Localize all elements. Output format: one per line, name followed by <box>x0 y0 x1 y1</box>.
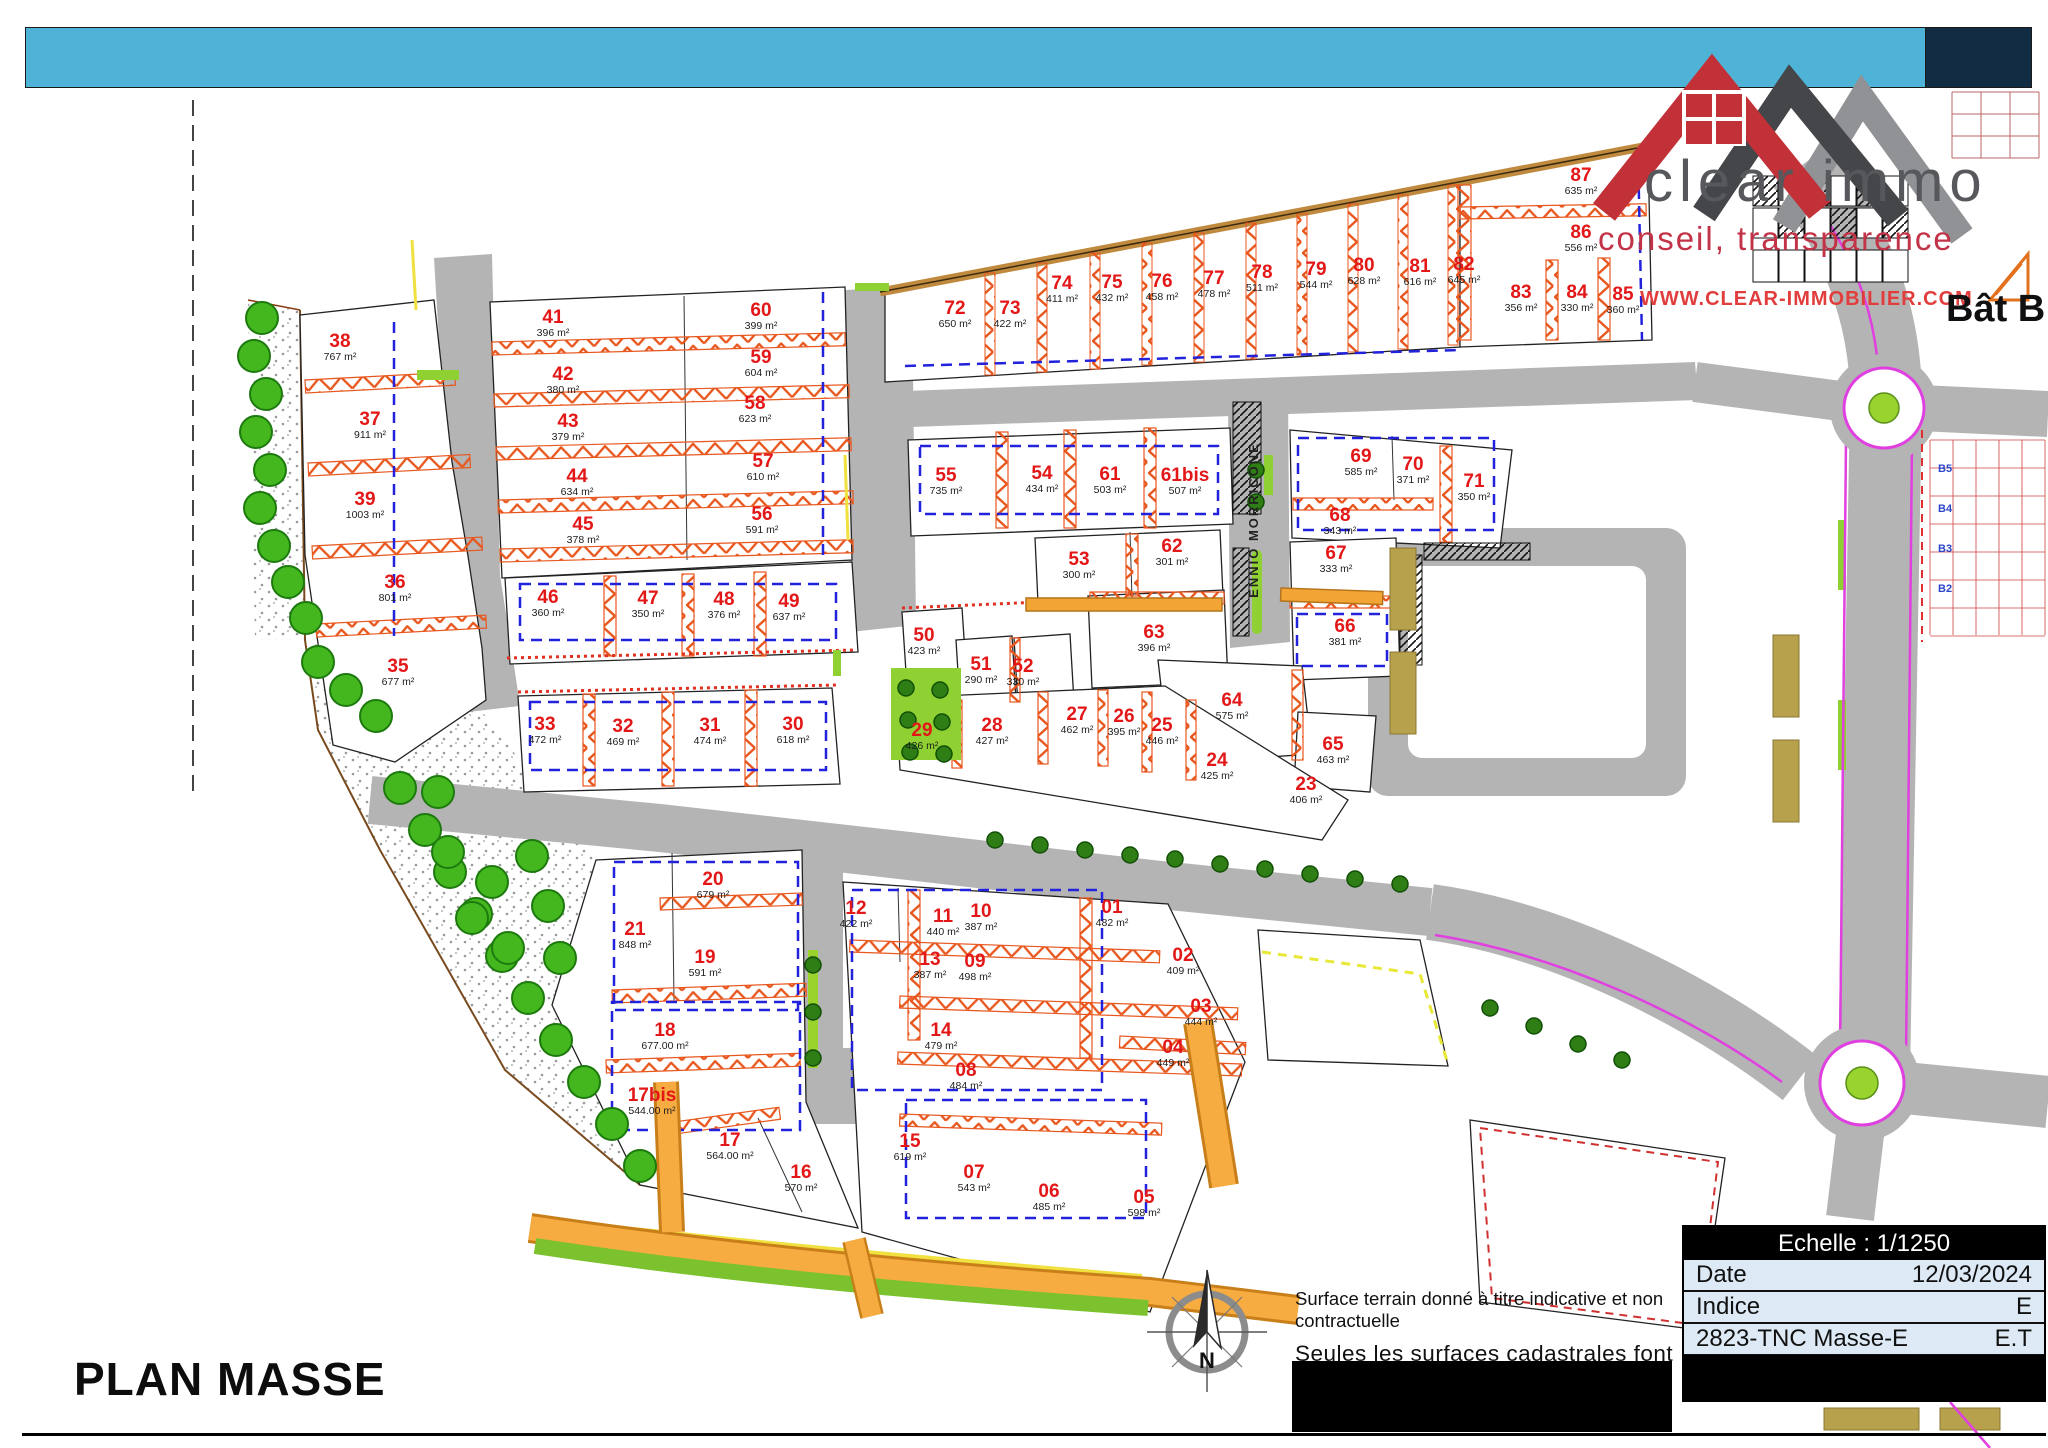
scale-label: Echelle : 1/1250 <box>1684 1227 2044 1260</box>
roundabout-south <box>1804 1025 1920 1141</box>
lot-area: 511 m² <box>1246 282 1278 294</box>
lot-number: 59 <box>750 347 771 368</box>
inner-parcel <box>1408 566 1646 758</box>
lot-area: 434 m² <box>1026 483 1059 495</box>
lot-number: 30 <box>782 714 803 735</box>
title-block-footer-band <box>1682 1355 2046 1402</box>
lot-area: 381 m² <box>1329 636 1362 648</box>
building-label: B3 <box>1938 543 1952 555</box>
title-block-row: Indice E <box>1684 1292 2044 1324</box>
lot-area: 848 m² <box>619 939 652 951</box>
lot-number: 11 <box>933 906 954 927</box>
lot-area: 333 m² <box>1320 563 1353 575</box>
lot-number: 18 <box>654 1020 675 1041</box>
lot-area: 479 m² <box>925 1040 958 1052</box>
lot-area: 446 m² <box>1146 735 1179 747</box>
lot-number: 47 <box>637 588 658 609</box>
lot-area: 463 m² <box>1317 754 1350 766</box>
lot-number: 71 <box>1463 471 1485 492</box>
lot-number: 67 <box>1325 543 1346 564</box>
lot-area: 485 m² <box>1033 1201 1066 1213</box>
lot-area: 604 m² <box>745 367 778 379</box>
page-title: PLAN MASSE <box>74 1352 386 1406</box>
lot-number: 75 <box>1101 272 1123 293</box>
lot-area: 300 m² <box>1063 569 1096 581</box>
logo-name: clear immo <box>1644 148 1988 215</box>
row-label: 2823-TNC Masse-E <box>1696 1325 1908 1353</box>
lot-number: 17bis <box>628 1085 677 1106</box>
lot-number: 09 <box>964 951 985 972</box>
lot-number: 46 <box>537 587 558 608</box>
lot-area: 350 m² <box>1458 491 1491 503</box>
lot-area: 484 m² <box>950 1080 983 1092</box>
lot-number: 81 <box>1409 256 1431 277</box>
lot-area: 378 m² <box>567 534 600 546</box>
lot-number: 19 <box>694 947 715 968</box>
lot-area: 426 m² <box>906 740 939 752</box>
lot-area: 575 m² <box>1216 710 1249 722</box>
lot-number: 07 <box>963 1162 984 1183</box>
lot-area: 376 m² <box>708 609 741 621</box>
lot-number: 63 <box>1143 622 1164 643</box>
lot-number: 53 <box>1068 549 1089 570</box>
lot-number: 43 <box>557 411 578 432</box>
lot-area: 623 m² <box>739 413 772 425</box>
lot-area: 396 m² <box>1138 642 1171 654</box>
north-label: N <box>1199 1348 1215 1373</box>
lot-area: 498 m² <box>959 971 992 983</box>
lot-number: 28 <box>981 715 1002 736</box>
lot-area: 618 m² <box>777 734 810 746</box>
lot-number: 66 <box>1334 616 1355 637</box>
sheet-frame-line <box>22 1433 2046 1436</box>
lot-area: 503 m² <box>1094 484 1127 496</box>
lot-number: 02 <box>1172 945 1193 966</box>
lot-area: 449 m² <box>1157 1057 1190 1069</box>
title-block-row: Date 12/03/2024 <box>1684 1260 2044 1292</box>
lot-number: 39 <box>354 489 375 510</box>
lot-area: 610 m² <box>747 471 780 483</box>
street-name: ENNIO MORRICONE <box>1246 442 1261 598</box>
lot-area: 677 m² <box>382 676 415 688</box>
lot-number: 15 <box>899 1131 921 1152</box>
lot-area: 427 m² <box>976 735 1009 747</box>
lot-number: 49 <box>778 591 799 612</box>
lot-number: 25 <box>1151 715 1173 736</box>
lot-area: 343 m² <box>1324 525 1357 537</box>
lot-area: 585 m² <box>1345 466 1378 478</box>
lot-number: 27 <box>1066 704 1087 725</box>
lot-area: 440 m² <box>927 926 960 938</box>
lot-number: 42 <box>552 364 573 385</box>
lot-area: 432 m² <box>1096 292 1129 304</box>
building-label: B2 <box>1938 583 1952 595</box>
lot-number: 17 <box>719 1130 740 1151</box>
lot-number: 13 <box>919 949 940 970</box>
lot-number: 45 <box>572 514 594 535</box>
lot-number: 48 <box>713 589 734 610</box>
lot-area: 396 m² <box>537 327 570 339</box>
lot-area: 301 m² <box>1156 556 1189 568</box>
lot-number: 31 <box>699 715 721 736</box>
lot-area: 409 m² <box>1167 965 1200 977</box>
lot-number: 14 <box>930 1020 952 1041</box>
lot-area: 422 m² <box>994 318 1027 330</box>
lot-area: 1003 m² <box>346 509 385 521</box>
lot-area: 423 m² <box>908 645 941 657</box>
lot-number: 41 <box>542 307 564 328</box>
lot-area: 679 m² <box>697 889 730 901</box>
lot-number: 73 <box>999 298 1020 319</box>
lot-number: 37 <box>359 409 380 430</box>
lot-number: 35 <box>387 656 409 677</box>
lot-number: 20 <box>702 869 723 890</box>
lot-area: 399 m² <box>745 320 778 332</box>
lot-area: 767 m² <box>324 351 357 363</box>
lot-area: 801 m² <box>379 592 412 604</box>
lot-area: 616 m² <box>1404 276 1437 288</box>
lot-area: 469 m² <box>607 736 640 748</box>
lot-number: 54 <box>1031 463 1053 484</box>
lot-area: 570 m² <box>785 1182 818 1194</box>
lot-number: 70 <box>1402 454 1423 475</box>
lot-area: 591 m² <box>746 524 779 536</box>
lot-number: 52 <box>1012 656 1033 677</box>
lot-number: 26 <box>1113 706 1134 727</box>
lot-number: 74 <box>1051 273 1073 294</box>
lot-number: 36 <box>384 572 405 593</box>
lot-number: 68 <box>1329 505 1350 526</box>
lot-area: 371 m² <box>1397 474 1430 486</box>
lot-area: 474 m² <box>694 735 727 747</box>
lot-number: 10 <box>970 901 991 922</box>
lot-area: 507 m² <box>1169 485 1202 497</box>
lot-area: 425 m² <box>1201 770 1234 782</box>
lot-number: 03 <box>1190 996 1211 1017</box>
lot-number: 04 <box>1162 1037 1184 1058</box>
row-label: Indice <box>1696 1293 1760 1321</box>
lot-area: 406 m² <box>1290 794 1323 806</box>
lot-area: 360 m² <box>532 607 565 619</box>
lot-area: 677.00 m² <box>641 1040 689 1052</box>
lot-area: 591 m² <box>689 967 722 979</box>
lot-number: 21 <box>624 919 646 940</box>
row-label: Date <box>1696 1261 1747 1289</box>
lot-area: 472 m² <box>529 734 562 746</box>
lot-number: 62 <box>1161 536 1182 557</box>
lot-area: 543 m² <box>958 1182 991 1194</box>
plan-masse-sheet: ENNIO MORRICONE N 38767 m²37911 m²391003… <box>0 0 2048 1448</box>
lot-number: 06 <box>1038 1181 1059 1202</box>
lot-number: 80 <box>1353 255 1374 276</box>
black-band <box>1292 1361 1672 1432</box>
lot-area: 350 m² <box>632 608 665 620</box>
lot-number: 82 <box>1453 254 1474 275</box>
lot-number: 58 <box>744 393 765 414</box>
lot-area: 634 m² <box>561 486 594 498</box>
lot-number: 32 <box>612 716 633 737</box>
lot-area: 598 m² <box>1128 1207 1161 1219</box>
lot-area: 650 m² <box>939 318 972 330</box>
lot-number: 57 <box>752 451 773 472</box>
lot-area: 637 m² <box>773 611 806 623</box>
lot-number: 51 <box>970 654 992 675</box>
title-block-row: 2823-TNC Masse-E E.T <box>1684 1324 2044 1356</box>
lot-number: 24 <box>1206 750 1228 771</box>
note-line-1: Surface terrain donné à titre indicative… <box>1295 1288 1695 1332</box>
lot-number: 38 <box>329 331 350 352</box>
lot-area: 330 m² <box>1007 676 1040 688</box>
lot-number: 01 <box>1101 897 1123 918</box>
lot-number: 55 <box>935 465 957 486</box>
lot-area: 356 m² <box>1505 302 1538 314</box>
lot-area: 462 m² <box>1061 724 1094 736</box>
lot-number: 83 <box>1510 282 1531 303</box>
bat-b-label: Bât B <box>1946 288 2045 331</box>
lot-number: 08 <box>955 1060 976 1081</box>
row-value: E <box>2016 1293 2032 1321</box>
row-value: 12/03/2024 <box>1912 1261 2032 1289</box>
lot-number: 78 <box>1251 262 1272 283</box>
lot-number: 72 <box>944 298 965 319</box>
lot-number: 12 <box>845 898 866 919</box>
lot-number: 69 <box>1350 446 1371 467</box>
lot-area: 735 m² <box>930 485 963 497</box>
lot-number: 61bis <box>1161 465 1210 486</box>
lot-area: 544 m² <box>1300 279 1333 291</box>
lot-number: 33 <box>534 714 555 735</box>
lot-area: 482 m² <box>1096 917 1129 929</box>
lot-number: 29 <box>911 720 932 741</box>
lot-number: 76 <box>1151 271 1172 292</box>
lot-number: 61 <box>1099 464 1121 485</box>
lot-number: 79 <box>1305 259 1326 280</box>
lot-area: 619 m² <box>894 1151 927 1163</box>
lot-number: 56 <box>751 504 772 525</box>
lot-number: 65 <box>1322 734 1344 755</box>
lot-number: 16 <box>790 1162 811 1183</box>
lot-area: 380 m² <box>547 384 580 396</box>
building-label: B5 <box>1938 463 1952 475</box>
lot-area: 911 m² <box>354 429 386 441</box>
building-labels: B5B4B3B2 <box>1938 463 1953 595</box>
lot-area: 379 m² <box>552 431 585 443</box>
lot-number: 64 <box>1221 690 1243 711</box>
lot-number: 60 <box>750 300 771 321</box>
row-value: E.T <box>1995 1325 2032 1353</box>
lot-number: 05 <box>1133 1187 1155 1208</box>
lot-area: 458 m² <box>1146 291 1179 303</box>
lot-area: 628 m² <box>1348 275 1381 287</box>
lot-area: 411 m² <box>1046 293 1078 305</box>
building-label: B4 <box>1938 503 1953 515</box>
lot-area: 645 m² <box>1448 274 1481 286</box>
lot-area: 444 m² <box>1185 1016 1218 1028</box>
lot-area: 544.00 m² <box>628 1105 676 1117</box>
lot-number: 44 <box>566 466 588 487</box>
title-block: Echelle : 1/1250 Date 12/03/2024 Indice … <box>1682 1225 2046 1402</box>
lot-area: 564.00 m² <box>706 1150 754 1162</box>
lot-number: 23 <box>1295 774 1316 795</box>
lot-number: 77 <box>1203 268 1224 289</box>
lot-area: 478 m² <box>1198 288 1231 300</box>
logo-website: WWW.CLEAR-IMMOBILIER.COM <box>1640 288 1973 311</box>
lot-area: 395 m² <box>1108 726 1141 738</box>
lot-area: 387 m² <box>914 969 947 981</box>
logo-tagline: conseil, transparence <box>1598 220 1954 258</box>
lot-area: 290 m² <box>965 674 998 686</box>
lot-area: 422 m² <box>840 918 873 930</box>
lot-number: 50 <box>913 625 934 646</box>
lot-area: 387 m² <box>965 921 998 933</box>
